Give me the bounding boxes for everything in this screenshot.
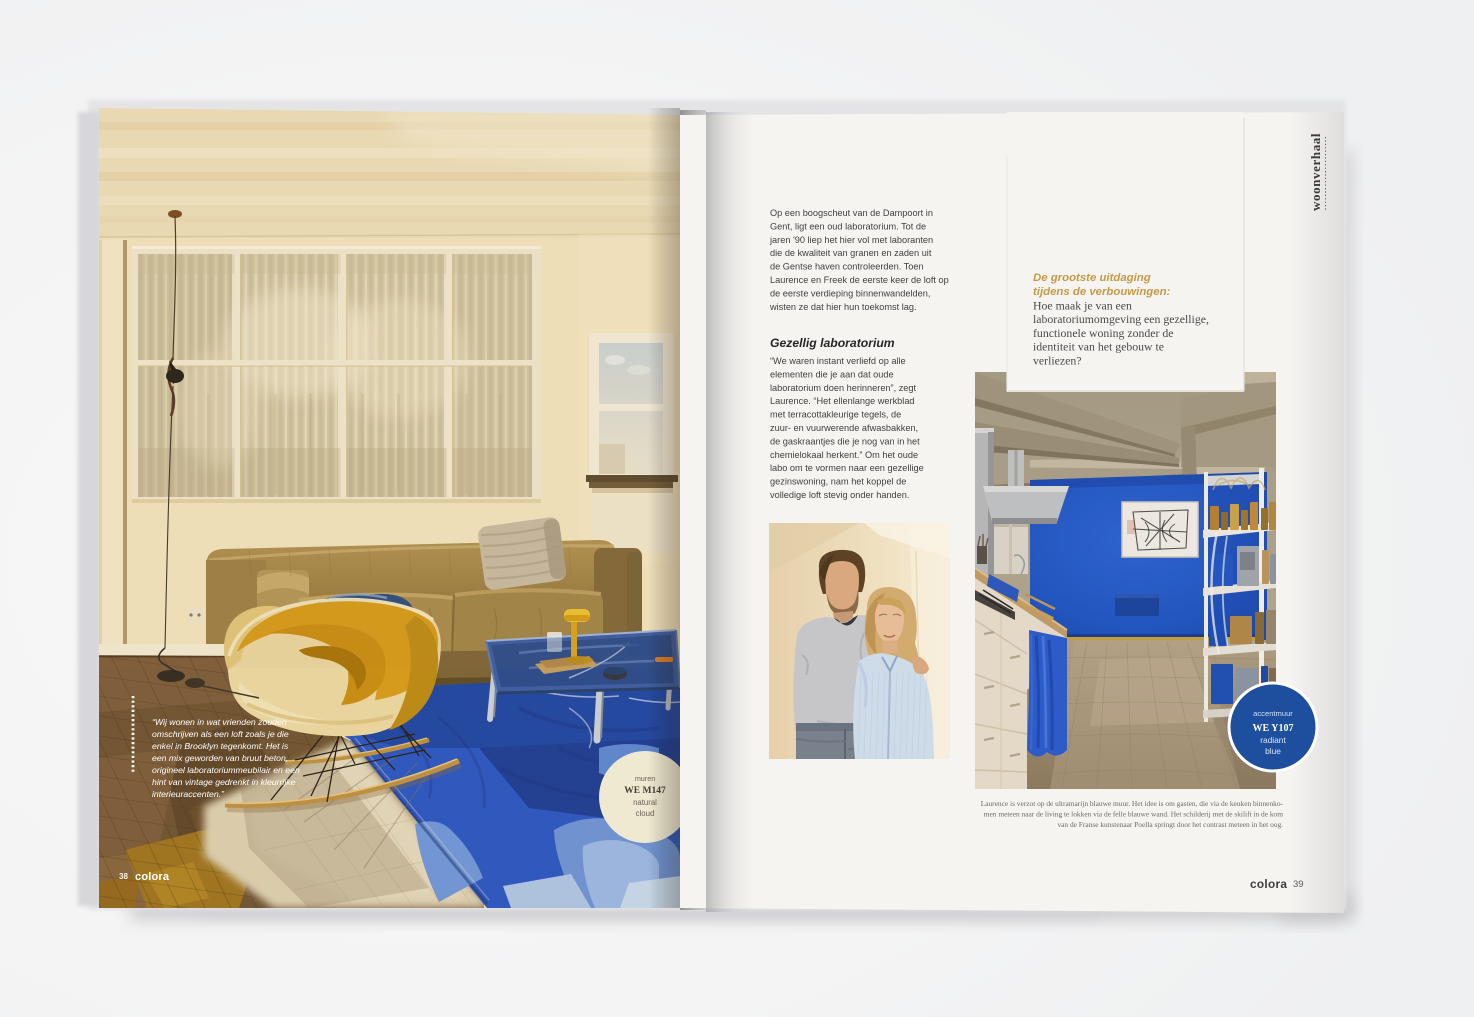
svg-text:Hoe maak je van een: Hoe maak je van een: [1033, 299, 1132, 313]
svg-text:chemielokaal herkent.” Om het: chemielokaal herkent.” Om het oude: [770, 450, 918, 460]
svg-text:De grootste uitdaging: De grootste uitdaging: [1033, 272, 1151, 284]
svg-text:Gent, ligt een oud laboratoriu: Gent, ligt een oud laboratorium. Tot de: [770, 221, 926, 231]
svg-text:jaren '90 liep het hier vol me: jaren '90 liep het hier vol met laborant…: [769, 235, 933, 245]
svg-text:de Gentse haven controleerden.: de Gentse haven controleerden. Toen: [770, 262, 924, 272]
svg-text:een mix geworden van bruut bet: een mix geworden van bruut beton,: [152, 753, 288, 763]
svg-text:zuur- en vuurwerende afwasbakk: zuur- en vuurwerende afwasbakken,: [770, 423, 918, 433]
svg-text:laboratorium doen herinneren”,: laboratorium doen herinneren”, zegt: [770, 383, 917, 393]
svg-text:Laurence en Freek de eerste ke: Laurence en Freek de eerste keer de loft…: [770, 275, 949, 285]
svg-text:elementen die je aan dat oude: elementen die je aan dat oude: [770, 369, 894, 379]
svg-text:colora: colora: [135, 871, 170, 883]
svg-text:de gaskraantjes die je nog van: de gaskraantjes die je nog van in het: [770, 436, 920, 446]
svg-text:met terracottakleurige tegels,: met terracottakleurige tegels, de: [770, 410, 901, 420]
svg-text:Gezellig laboratorium: Gezellig laboratorium: [770, 336, 895, 350]
svg-text:gezinswoning, nam het koppel d: gezinswoning, nam het koppel de: [770, 477, 906, 487]
svg-text:38: 38: [119, 872, 128, 881]
svg-text:enkel in Brooklyn tegenkomt. H: enkel in Brooklyn tegenkomt. Het is: [152, 741, 289, 751]
svg-text:hint van vintage gedrenkt in k: hint van vintage gedrenkt in kleurrijke: [152, 777, 296, 787]
svg-text:interieuraccenten.”: interieuraccenten.”: [152, 789, 225, 799]
svg-text:39: 39: [1293, 879, 1304, 890]
svg-text:woonverhaal: woonverhaal: [1308, 133, 1323, 211]
svg-text:die de kwaliteit van granen en: die de kwaliteit van granen en zaden uit: [770, 248, 932, 258]
svg-text:functionele woning zonder de: functionele woning zonder de: [1033, 326, 1174, 340]
svg-text:Laurence. “Het ellenlange werk: Laurence. “Het ellenlange werkblad: [770, 396, 915, 406]
svg-text:origineel laboratoriummeubilai: origineel laboratoriummeubilair en een: [152, 765, 300, 775]
svg-text:WE Y107: WE Y107: [1252, 723, 1293, 734]
svg-text:labo om te vormen naar een gez: labo om te vormen naar een gezellige: [770, 463, 924, 473]
svg-text:omschrijven als een loft zoals: omschrijven als een loft zoals je die: [152, 729, 289, 739]
svg-text:accentmuur: accentmuur: [1253, 709, 1293, 718]
svg-text:colora: colora: [1250, 877, 1287, 891]
svg-text:volledige loft stevig onder ha: volledige loft stevig onder handen.: [770, 490, 909, 500]
svg-text:“Wij wonen in wat vrienden zou: “Wij wonen in wat vrienden zouden: [152, 717, 287, 727]
svg-text:de eerste verdieping binnenwan: de eerste verdieping binnenwandelden,: [770, 288, 930, 298]
svg-text:tijdens de verbouwingen:: tijdens de verbouwingen:: [1033, 286, 1171, 298]
svg-text:identiteit van het gebouw te: identiteit van het gebouw te: [1033, 340, 1164, 354]
svg-text:radiant: radiant: [1260, 735, 1286, 745]
svg-text:verliezen?: verliezen?: [1033, 353, 1081, 367]
svg-text:blue: blue: [1265, 746, 1281, 756]
svg-text:men meteen naar de living te l: men meteen naar de living te lokken via …: [984, 809, 1283, 818]
svg-text:laboratoriumomgeving een gezel: laboratoriumomgeving een gezellige,: [1033, 312, 1209, 326]
svg-text:“We waren instant verliefd op: “We waren instant verliefd op alle: [770, 356, 906, 366]
svg-text:Laurence is verzot op de ultra: Laurence is verzot op de ultramarijn bla…: [981, 799, 1284, 808]
svg-text:wisten ze dat hier hun toekoms: wisten ze dat hier hun toekomst lag.: [769, 302, 917, 312]
svg-text:Op een boogscheut van de Dampo: Op een boogscheut van de Dampoort in: [770, 208, 933, 218]
svg-text:van de Franse kunstenaar Poell: van de Franse kunstenaar Poella springt …: [1057, 820, 1283, 829]
